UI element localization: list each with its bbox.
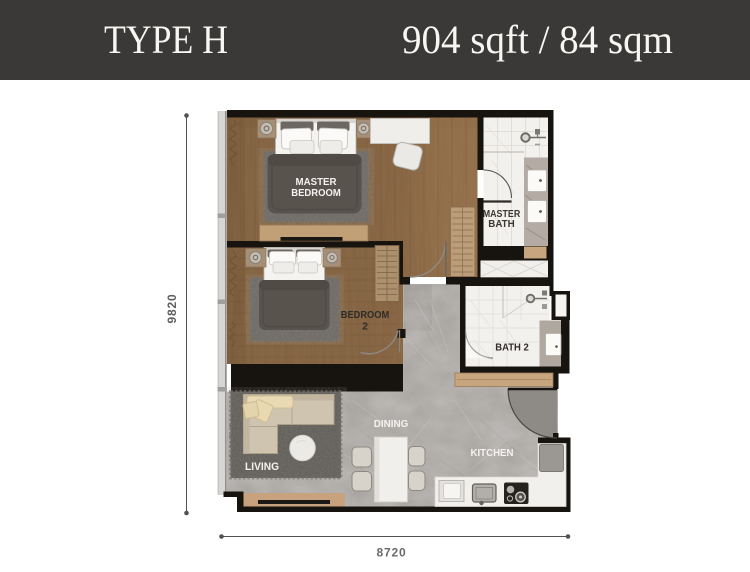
svg-text:MASTER: MASTER	[296, 176, 337, 188]
svg-text:8720: 8720	[377, 546, 407, 560]
svg-text:TYPE H: TYPE H	[104, 17, 228, 62]
svg-text:904 sqft / 84 sqm: 904 sqft / 84 sqm	[402, 17, 673, 62]
svg-text:KITCHEN: KITCHEN	[471, 447, 514, 459]
svg-text:BATH 2: BATH 2	[495, 341, 529, 353]
svg-text:BATH: BATH	[488, 218, 515, 230]
svg-text:BEDROOM: BEDROOM	[341, 309, 390, 321]
svg-text:BEDROOM: BEDROOM	[291, 187, 341, 199]
svg-text:LIVING: LIVING	[245, 461, 279, 473]
svg-text:2: 2	[362, 320, 368, 332]
svg-text:9820: 9820	[165, 294, 179, 324]
svg-text:DINING: DINING	[374, 418, 409, 430]
